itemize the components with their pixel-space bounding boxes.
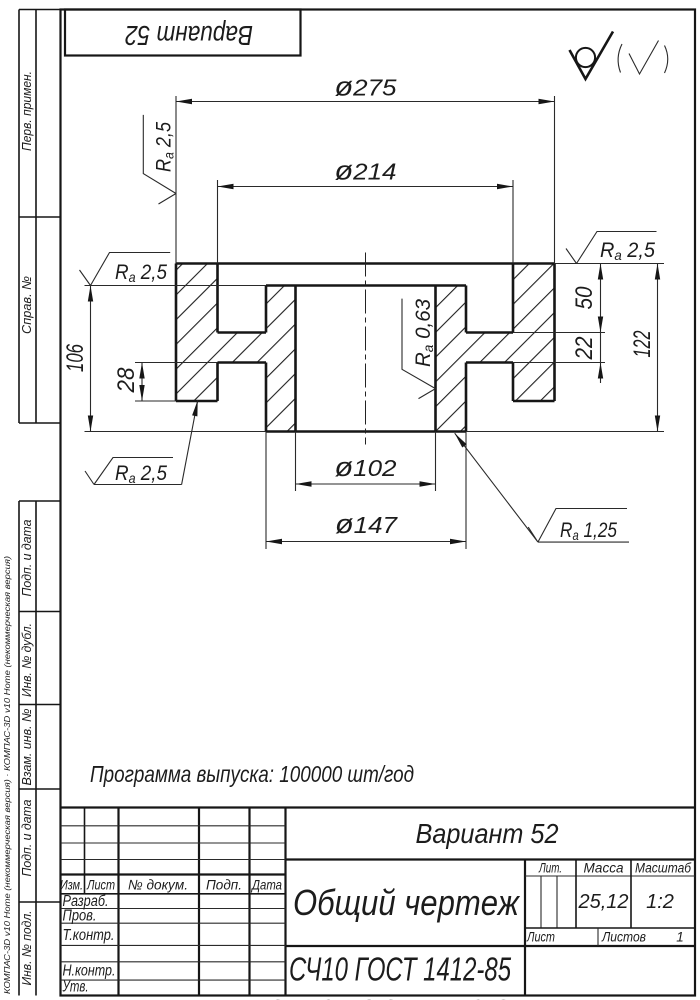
svg-text:Перв. примен.: Перв. примен. [19,71,34,151]
svg-text:Утв.: Утв. [62,979,89,996]
svg-text:Лист: Лист [526,930,555,945]
svg-text:КОМПАС-3D v10 Home (некоммерче: КОМПАС-3D v10 Home (некоммерческая верси… [2,556,12,994]
svg-text:Ra 0,63: Ra 0,63 [412,299,436,367]
svg-text:Взам. инв. №: Взам. инв. № [19,709,34,786]
svg-text:1: 1 [676,930,684,945]
svg-text:Ra 2,5: Ra 2,5 [115,261,167,285]
svg-text:СЧ10 ГОСТ 1412-85: СЧ10 ГОСТ 1412-85 [289,951,511,988]
svg-text:Лит.: Лит. [538,861,562,876]
svg-text:Справ. №: Справ. № [19,276,34,334]
svg-text:Подп. и дата: Подп. и дата [19,520,34,597]
svg-text:Масштаб: Масштаб [635,861,691,876]
svg-text:ø275: ø275 [335,72,397,102]
svg-text:Подп.: Подп. [206,877,242,893]
svg-text:Пров.: Пров. [63,908,97,925]
svg-text:Инв. № подл.: Инв. № подл. [19,911,34,986]
svg-text:Ra 2,5: Ra 2,5 [115,462,167,486]
svg-text:ø147: ø147 [335,509,398,539]
svg-text:Масса: Масса [584,861,624,876]
svg-text:Т.контр.: Т.контр. [63,927,115,944]
svg-text:Лист: Лист [86,877,115,893]
svg-text:22: 22 [571,337,598,361]
svg-text:28: 28 [113,367,140,394]
svg-text:Дата: Дата [250,877,282,893]
svg-text:50: 50 [571,286,598,310]
svg-text:Вариант 52: Вариант 52 [125,20,253,51]
svg-text:Подп. и дата: Подп. и дата [19,800,34,877]
svg-text:Изм.: Изм. [60,877,83,893]
svg-text:СЧ10 ГОСТ 1412-85: СЧ10 ГОСТ 1412-85 [265,994,526,1000]
svg-text:ø214: ø214 [335,156,397,186]
svg-text:Инв. № дубл.: Инв. № дубл. [19,623,34,697]
svg-text:Вариант 52: Вариант 52 [416,818,559,849]
svg-text:Ra 1,25: Ra 1,25 [560,518,618,543]
svg-text:Н.контр.: Н.контр. [63,963,116,980]
svg-text:106: 106 [62,344,89,372]
svg-text:ø102: ø102 [335,452,397,482]
svg-text:№ докум.: № докум. [128,877,188,893]
svg-text:Листов: Листов [601,930,646,945]
svg-text:25,12: 25,12 [577,891,628,913]
svg-text:Ra 2,5: Ra 2,5 [153,122,177,172]
svg-text:1:2: 1:2 [646,891,674,913]
svg-text:Программа выпуска: 100000 шт/г: Программа выпуска: 100000 шт/год [90,761,414,787]
svg-text:122: 122 [629,331,656,358]
svg-text:Общий чертеж: Общий чертеж [293,882,521,923]
svg-text:Ra 2,5: Ra 2,5 [600,239,655,263]
